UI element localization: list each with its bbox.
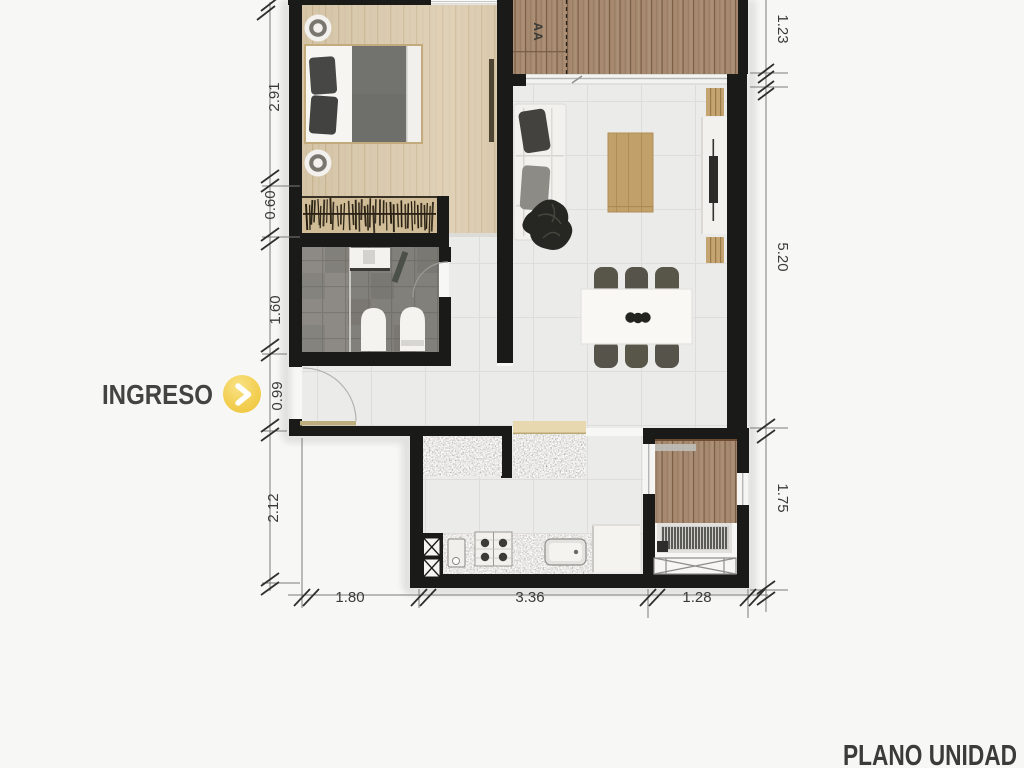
svg-text:AA: AA bbox=[531, 22, 545, 41]
svg-text:PLANO UNIDAD: PLANO UNIDAD bbox=[843, 740, 1017, 768]
svg-text:INGRESO: INGRESO bbox=[102, 379, 213, 410]
svg-text:0.99: 0.99 bbox=[269, 381, 286, 410]
svg-text:1.60: 1.60 bbox=[267, 295, 284, 324]
svg-text:3.36: 3.36 bbox=[515, 589, 544, 606]
svg-text:5.20: 5.20 bbox=[774, 242, 791, 271]
svg-text:1.80: 1.80 bbox=[335, 589, 364, 606]
svg-text:1.23: 1.23 bbox=[774, 14, 791, 43]
svg-text:1.28: 1.28 bbox=[682, 589, 711, 606]
svg-text:2.91: 2.91 bbox=[266, 82, 283, 111]
svg-text:1.75: 1.75 bbox=[774, 483, 791, 512]
svg-text:2.12: 2.12 bbox=[265, 493, 282, 522]
svg-text:0.60: 0.60 bbox=[262, 190, 279, 219]
